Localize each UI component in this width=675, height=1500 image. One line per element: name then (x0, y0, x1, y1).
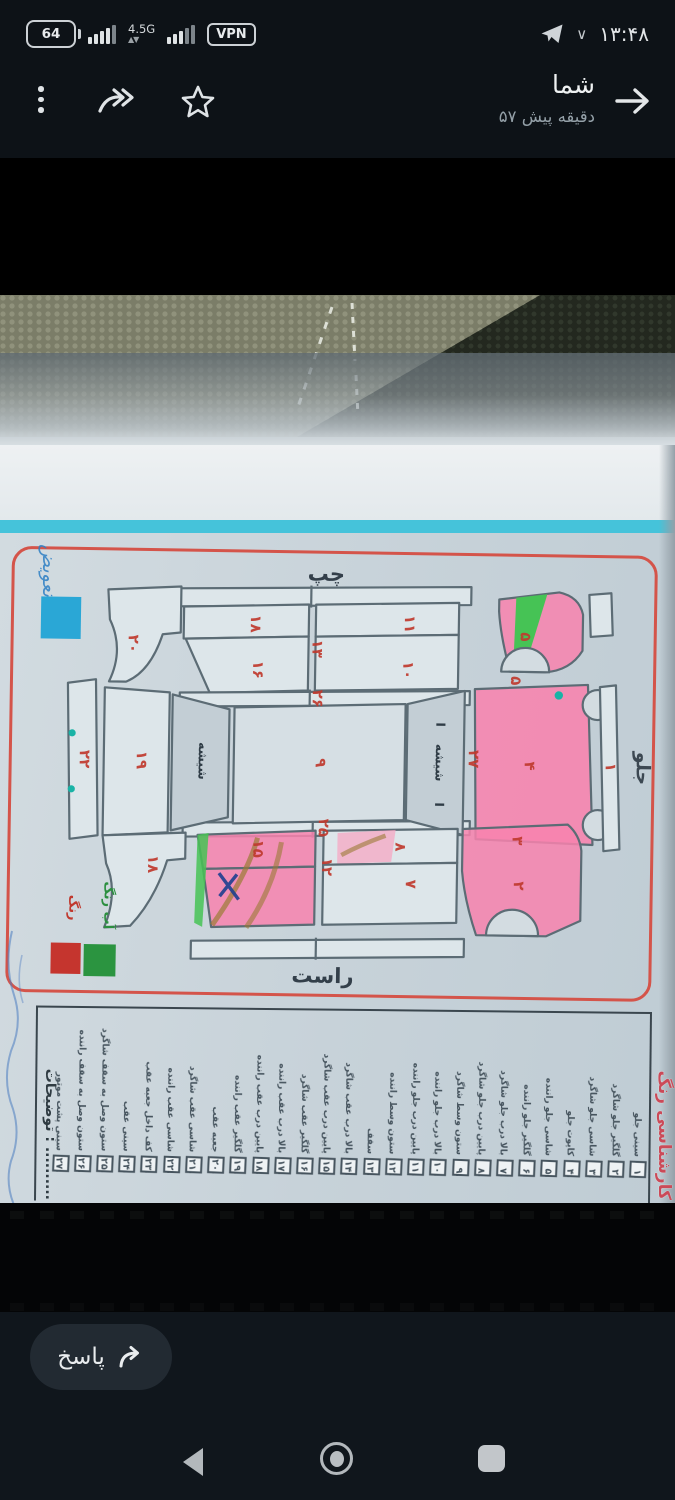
checklist-item-number: ۱۴. (342, 1161, 353, 1176)
checklist: سینی جلو۱.گلگیر جلو شاگرد۲.شاسی جلو شاگر… (48, 1009, 650, 1203)
nav-home-button[interactable] (320, 1442, 353, 1475)
network-type: 4.5G ▲▼ (128, 24, 155, 45)
app-bar: شما ۵۷ دقیقه پیش (0, 56, 675, 156)
checklist-item: بالا درب جلو شاگرد۷. (493, 1013, 517, 1201)
legend-paint-label: رنگ (65, 895, 81, 921)
checklist-item: کف داخل جعبه عقب۲۳. (137, 1010, 161, 1198)
checklist-item-number: ۶. (520, 1168, 531, 1178)
android-nav-bar (0, 1440, 675, 1490)
checklist-item: ستون وصل به سقف شاگرد۲۵. (93, 1009, 117, 1197)
checklist-item-label: بالا درب عقب شاگرد (342, 1062, 353, 1154)
diagram-number: ۱۲ (318, 858, 336, 877)
diagram-number: ۵ (517, 632, 535, 641)
margin-scribbles (0, 925, 30, 1203)
checklist-item-number: ۱۵. (320, 1160, 331, 1175)
checklist-item: سقف۱۳. (359, 1012, 383, 1200)
checklist-item: گلگیر عقب راننده۱۹. (226, 1011, 250, 1199)
legend-lightpaint-swatch (83, 944, 115, 976)
diagram-number: ۲۵ (315, 818, 333, 837)
checklist-item-label: کف داخل جعبه عقب (143, 1061, 154, 1152)
checklist-item: بالا درب عقب راننده۱۷. (270, 1011, 294, 1199)
media-viewer-screen: 64 4.5G ▲▼ VPN ∨ ۱۳:۴۸ (0, 0, 675, 1500)
checklist-item: سینی جلو۱. (626, 1015, 650, 1203)
glass-label: شیشه (432, 744, 448, 782)
star-icon (180, 84, 216, 120)
checklist-item-number: ۱۶. (298, 1160, 309, 1175)
nav-recents-button[interactable] (478, 1445, 505, 1472)
data-arrows-icon: ▲▼ (128, 36, 138, 44)
checklist-item-number: ۲۶. (76, 1158, 87, 1173)
checklist-item-number: ۵. (542, 1168, 553, 1178)
bottom-chrome: پاسخ (0, 1312, 675, 1500)
checklist-item-label: بالا درب جلو شاگرد (498, 1070, 509, 1155)
checklist-item-label: گلگیر عقب شاگرد (298, 1074, 309, 1154)
checklist-item-number: ۱۸. (253, 1160, 264, 1175)
checklist-item: بالا درب جلو راننده۱۰. (426, 1013, 450, 1201)
nav-back-button[interactable] (183, 1448, 203, 1476)
clock: ۱۳:۴۸ (599, 22, 649, 46)
checklist-item-label: گلگیر عقب راننده (231, 1075, 242, 1153)
checklist-item: بالا درب عقب شاگرد۱۴. (337, 1012, 361, 1200)
checklist-item-number: ۱. (631, 1169, 642, 1179)
status-left: 64 4.5G ▲▼ VPN (26, 20, 256, 48)
checklist-item-label: ستون وسط راننده (387, 1072, 398, 1154)
sender-name: شما (499, 70, 595, 99)
checklist-item: پایین درب عقب شاگرد۱۵. (315, 1012, 339, 1200)
overflow-menu-button[interactable] (28, 86, 54, 122)
checklist-item-number: ۸. (476, 1168, 487, 1178)
checklist-item-number: ۱۷. (276, 1160, 287, 1175)
reply-button[interactable]: پاسخ (30, 1324, 172, 1390)
label-front: جلو (631, 751, 654, 786)
checklist-item: شاسی جلو راننده۵. (537, 1014, 561, 1202)
diagram-number: ۲۰ (124, 634, 142, 653)
car-panels (64, 581, 624, 966)
checklist-item: ستون وسط شاگرد۹. (448, 1013, 472, 1201)
checklist-item: گلگیر عقب شاگرد۱۶. (293, 1011, 317, 1199)
signal2-icon (167, 24, 195, 44)
checklist-item-label: شاسی جلو شاگرد (587, 1076, 598, 1156)
back-button[interactable] (613, 84, 653, 124)
diagram-number: ۱۳ (308, 639, 326, 658)
label-left-side: چپ (307, 562, 345, 587)
glass-label: شیشه (195, 742, 211, 780)
diagram-number: ۴ (521, 761, 539, 770)
battery-level: 64 (42, 26, 61, 42)
checklist-item-label: بالا درب عقب راننده (276, 1063, 287, 1153)
sender-info[interactable]: شما ۵۷ دقیقه پیش (499, 70, 595, 126)
checklist-item-label: ستون وصل به سقف راننده (76, 1030, 87, 1152)
checklist-item: شاسی جلو شاگرد۳. (581, 1014, 605, 1202)
diagram-number: ۲۷ (465, 750, 483, 769)
glass-mark: I (433, 722, 448, 727)
letterbox (0, 1203, 675, 1312)
diagram-number: ۱۹ (133, 751, 151, 770)
checklist-item-label: شاسی جلو راننده (542, 1078, 553, 1156)
diagram-number: ۵ (507, 676, 525, 685)
checklist-item: جعبه عقب۲۰. (204, 1010, 228, 1198)
checklist-item-number: ۲۲. (164, 1159, 175, 1174)
checklist-item-number: ۱۰. (431, 1161, 442, 1176)
checklist-item-label: شاسی عقب شاگرد (187, 1066, 198, 1152)
photo-attachment[interactable]: تعویض چپ راست جلو (0, 295, 675, 1203)
diagram-number: ۲ (510, 881, 528, 890)
back-arrow-icon (613, 84, 651, 118)
diagram-number: ۱ (602, 763, 620, 772)
checklist-item-number: ۹. (453, 1168, 464, 1178)
checklist-item-number: ۴. (564, 1169, 575, 1179)
checklist-item-label: ستون وصل به سقف شاگرد (98, 1028, 109, 1151)
diagram-number: ۱۶ (249, 660, 267, 679)
checklist-item-number: ۱۱. (409, 1161, 420, 1176)
checklist-item-number: ۲۳. (142, 1158, 153, 1173)
checklist-item-number: ۲۵. (98, 1158, 109, 1173)
forward-button[interactable] (96, 84, 136, 120)
checklist-item-label: گلگیر جلو شاگرد (609, 1083, 620, 1156)
cyan-stripe (0, 520, 675, 533)
diagram-number: ۲۲ (76, 750, 94, 769)
checklist-item-label: ستون وسط شاگرد (454, 1071, 465, 1155)
diagram-number: ۱۸ (144, 855, 162, 874)
favorite-button[interactable] (180, 84, 216, 120)
diagram-number: ۱۸ (247, 614, 265, 633)
checklist-item-number: ۷. (498, 1168, 509, 1178)
car-diagram: چپ راست جلو (5, 546, 658, 1002)
top-chrome: 64 4.5G ▲▼ VPN ∨ ۱۳:۴۸ (0, 0, 675, 158)
checklist-item-label: سینی عقب (120, 1101, 131, 1152)
checklist-item: پایین درب جلو راننده۱۱. (404, 1012, 428, 1200)
checklist-item-label: پایین درب عقب شاگرد (320, 1054, 331, 1154)
checklist-item-label: بالا درب جلو راننده (431, 1071, 442, 1154)
legend-paint-swatch (50, 943, 80, 974)
checklist-item: سینی عقب۲۴. (115, 1009, 139, 1197)
notes-label: توضیحات : .......... (42, 1069, 58, 1200)
battery-icon: 64 (26, 20, 76, 48)
diagram-number: ۱۰ (399, 661, 417, 680)
checklist-item-number: ۲. (609, 1169, 620, 1179)
checklist-item-label: سقف (365, 1128, 375, 1154)
checklist-item: شاسی عقب شاگرد۲۱. (181, 1010, 205, 1198)
checklist-item-number: ۲۱. (187, 1159, 198, 1174)
reply-arrow-icon (117, 1344, 145, 1370)
forward-icon (96, 84, 136, 120)
legend-lightpaint-label: آب رنگ (100, 881, 118, 930)
checklist-item-number: ۳. (587, 1169, 598, 1179)
checklist-item-label: کاپوت جلو (565, 1110, 575, 1156)
form-edge-text: کارشناسی رنگ (654, 1070, 674, 1200)
faint-print-row (10, 1211, 665, 1219)
vpn-badge: VPN (207, 23, 255, 46)
checklist-item: گلگیر جلو شاگرد۲. (604, 1015, 628, 1203)
diagram-number: ۲۶ (309, 689, 327, 708)
checklist-item-label: شاسی عقب راننده (165, 1067, 176, 1152)
checklist-item: ستون وصل به سقف راننده۲۶. (70, 1009, 94, 1197)
diagram-number: ۱۵ (249, 839, 267, 858)
checklist-item-number: ۱۳. (364, 1161, 375, 1176)
checklist-item: ستون وسط راننده۱۲. (381, 1012, 405, 1200)
checklist-item-label: پایین درب جلو شاگرد (476, 1062, 487, 1156)
checklist-item-number: ۲۰. (209, 1159, 220, 1174)
telegram-icon (540, 23, 564, 45)
checklist-item-number: ۲۴. (120, 1158, 131, 1173)
checklist-item: پایین درب عقب راننده۱۸. (248, 1011, 272, 1199)
diagram-number: ۱۱ (401, 615, 419, 634)
status-bar: 64 4.5G ▲▼ VPN ∨ ۱۳:۴۸ (0, 14, 675, 54)
checklist-item: شاسی عقب راننده۲۲. (159, 1010, 183, 1198)
reply-label: پاسخ (57, 1344, 105, 1370)
signal-icon (88, 24, 116, 44)
checklist-item-label: جعبه عقب (209, 1106, 219, 1152)
checklist-item-label: سینی جلو (631, 1113, 641, 1157)
notification-chevron-icon: ∨ (576, 25, 587, 43)
faint-print-row2 (10, 1303, 665, 1311)
diagram-number: ۷ (402, 879, 420, 888)
label-right-side: راست (291, 963, 354, 988)
plastic-cover-edge (0, 353, 675, 445)
checklist-item-label: گلگیر جلو راننده (520, 1084, 531, 1155)
checklist-item: کاپوت جلو۴. (559, 1014, 583, 1202)
paper-top-edge (0, 445, 675, 520)
checklist-item-label: پایین درب جلو راننده (409, 1063, 420, 1155)
diagram-number: ۸ (391, 842, 409, 851)
diagram-number: ۹ (312, 758, 330, 767)
checklist-item: گلگیر جلو راننده۶. (515, 1014, 539, 1202)
glass-mark: I (432, 802, 447, 807)
diagram-number: ۳ (508, 836, 526, 845)
checklist-item: پایین درب جلو شاگرد۸. (470, 1013, 494, 1201)
checklist-item-number: ۱۲. (387, 1161, 398, 1176)
legend-replace-swatch (41, 596, 82, 639)
status-right: ∨ ۱۳:۴۸ (540, 22, 649, 46)
checklist-item-label: پایین درب عقب راننده (254, 1055, 265, 1153)
timestamp: ۵۷ دقیقه پیش (499, 107, 595, 126)
checklist-item-number: ۱۹. (231, 1159, 242, 1174)
